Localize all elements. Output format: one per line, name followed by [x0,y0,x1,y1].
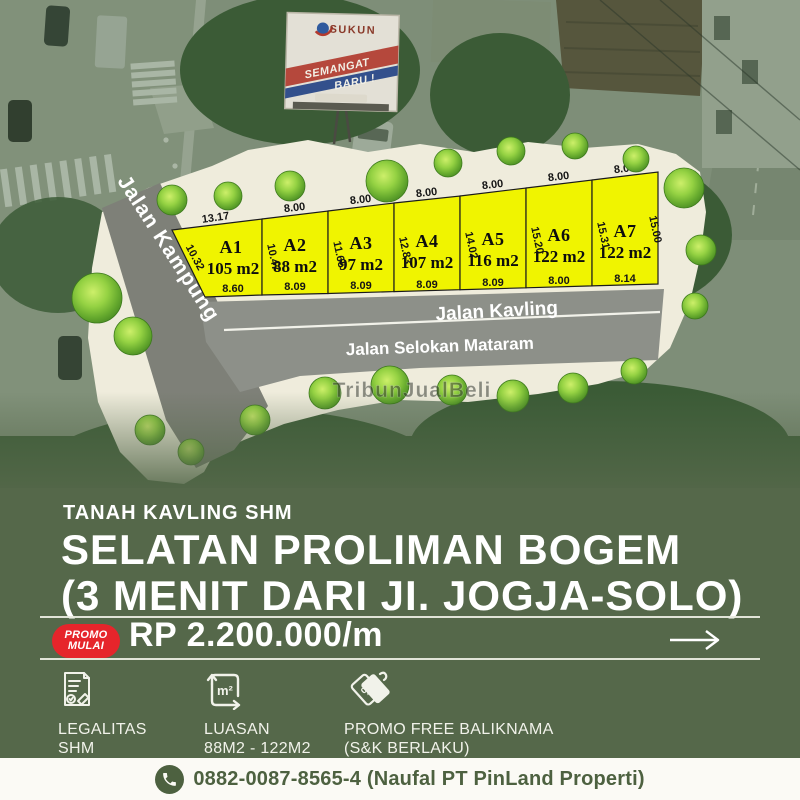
feature-promo: % PROMO FREE BALIKNAMA (S&K BERLAKU) [344,670,554,758]
promo-badge-line2: MULAI [68,641,104,652]
tree [562,133,588,159]
svg-text:A5: A5 [482,229,505,249]
tree [157,185,187,215]
tree [664,168,704,208]
svg-text:A2: A2 [284,235,307,255]
tree [623,146,649,172]
tree [275,171,305,201]
legality-document-icon [58,670,147,710]
feature-label: PROMO FREE BALIKNAMA (S&K BERLAKU) [344,720,554,758]
phone-number: 0882-0087-8565-4 (Naufal PT PinLand Prop… [193,768,644,791]
listing-title-line1: SELATAN PROLIMAN BOGEM [61,526,681,574]
contact-bar: 0882-0087-8565-4 (Naufal PT PinLand Prop… [0,758,800,800]
listing-kicker: TANAH KAVLING SHM [63,502,293,525]
feature-area: m² LUASAN 88M2 - 122M2 [204,670,311,758]
tree [114,317,152,355]
plot-a7: A7 122 m2 8.00 15.31 8.14 15.00 [592,162,664,286]
svg-text:8.14: 8.14 [614,273,636,285]
feature-label: LEGALITAS SHM [58,720,147,758]
tree [621,358,647,384]
divider [40,658,760,660]
listing-panel: TANAH KAVLING SHM SELATAN PROLIMAN BOGEM… [0,488,800,758]
svg-text:A3: A3 [350,233,373,253]
plot-a6: A6 122 m2 8.00 15.20 8.00 [526,170,592,288]
feature-legality: LEGALITAS SHM [58,670,147,758]
photo-fade-overlay [0,392,800,500]
billboard-brand: SUKUN [329,24,376,37]
price-text: RP 2.200.000/m [129,616,383,655]
plot-a4: A4 107 m2 8.00 12.83 8.09 [394,186,460,292]
svg-text:A1: A1 [220,237,243,257]
land-area-icon: m² [204,670,311,710]
plot-a5: A5 116 m2 8.00 14.02 8.09 [460,178,526,290]
svg-text:A6: A6 [548,225,571,245]
area-icon-glyph: m² [217,683,234,698]
svg-text:8.09: 8.09 [350,280,371,292]
tree [366,160,408,202]
tree [434,149,462,177]
tree [686,235,716,265]
features-row: LEGALITAS SHM m² LUASAN 88M2 - 12 [0,670,800,758]
listing-title-line2: (3 MENIT DARI JI. JOGJA-SOLO) [61,572,743,620]
svg-text:105 m2: 105 m2 [207,259,259,278]
arrow-right-icon [668,628,726,657]
promo-tag-icon: % [344,670,554,710]
svg-text:A7: A7 [614,221,637,241]
tree [72,273,122,323]
svg-text:A4: A4 [416,231,439,251]
svg-text:8.09: 8.09 [482,277,503,289]
svg-text:8.00: 8.00 [548,275,569,287]
phone-icon [155,765,184,794]
svg-text:8.60: 8.60 [222,283,243,295]
promo-badge: PROMO MULAI [52,624,120,658]
tree [497,137,525,165]
svg-text:8.09: 8.09 [416,279,437,291]
property-flyer: SUKUN SEMANGAT BARU ! Jalan Kampung Jala… [0,0,800,800]
feature-label: LUASAN 88M2 - 122M2 [204,720,311,758]
tree [214,182,242,210]
svg-text:8.09: 8.09 [284,281,305,293]
tree [682,293,708,319]
